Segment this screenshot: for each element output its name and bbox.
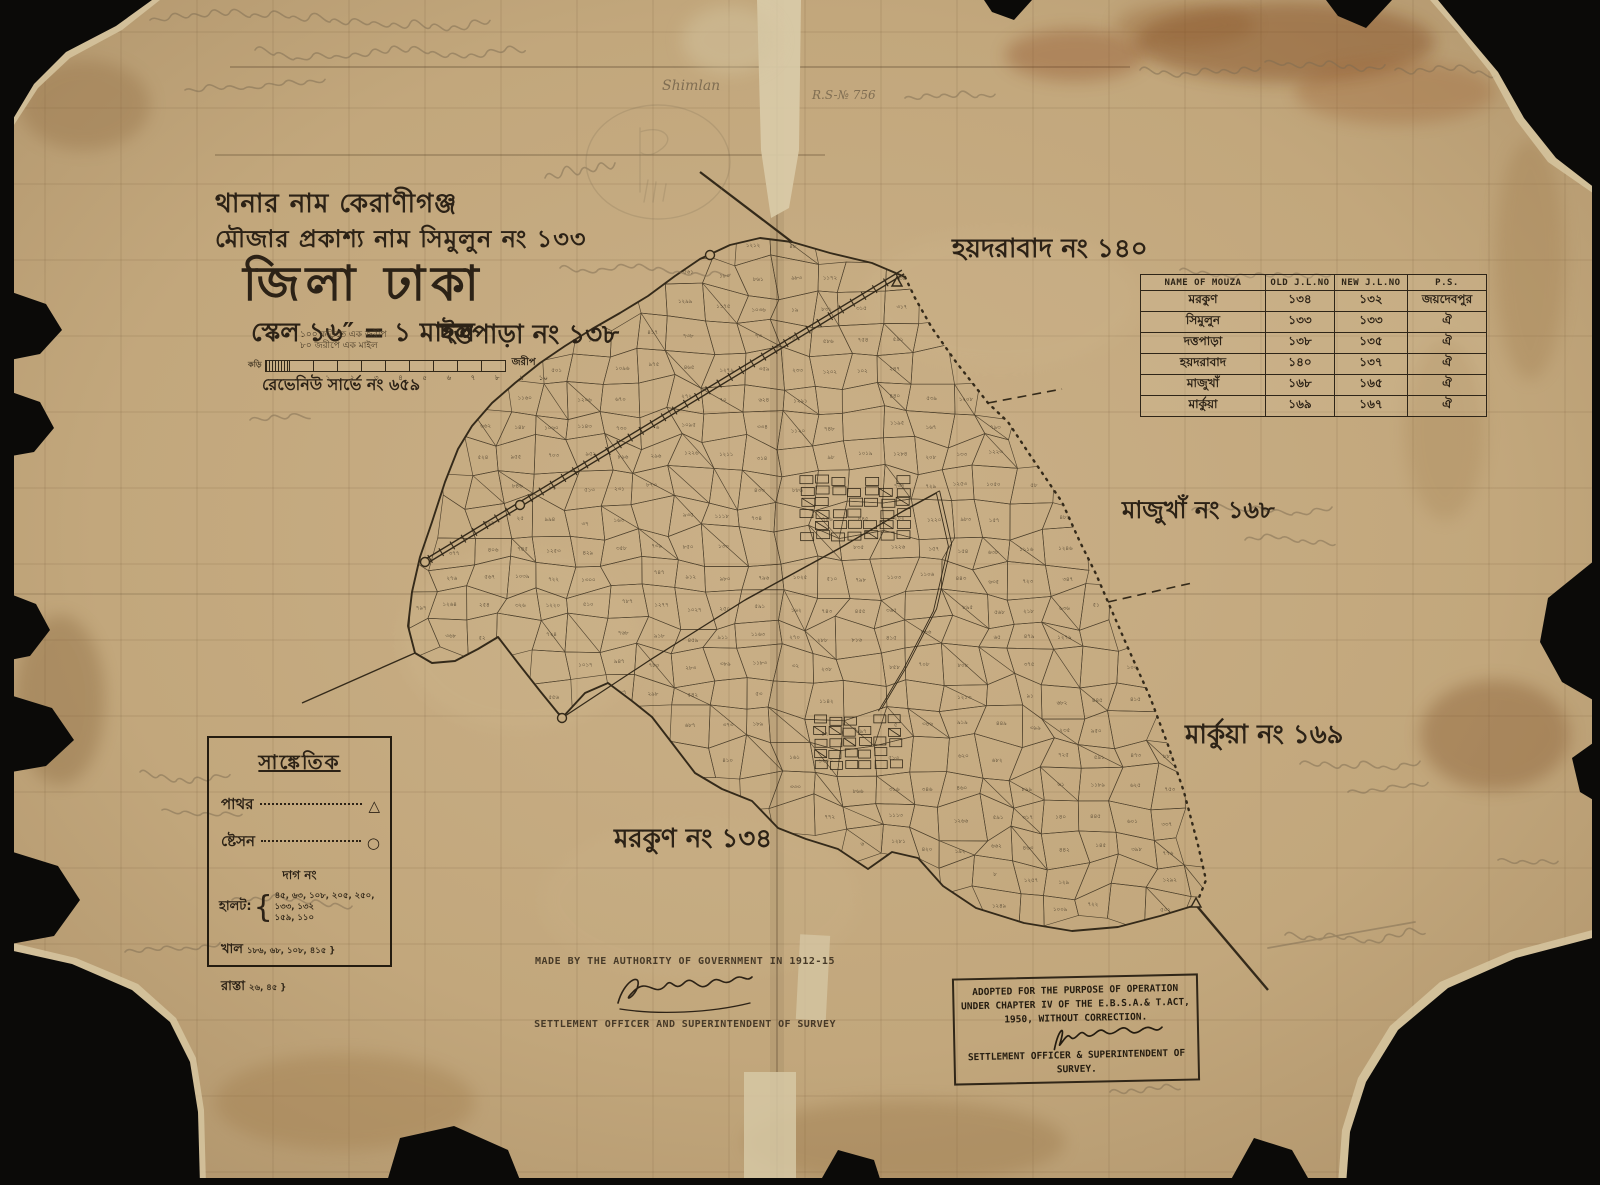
svg-text:১৩৩: ১৩৩: [956, 452, 967, 458]
svg-text:১২১৩: ১২১৩: [957, 695, 972, 701]
svg-text:৯৪৭: ৯৪৭: [614, 659, 625, 665]
svg-text:২০৮: ২০৮: [925, 455, 936, 461]
svg-text:১২০২: ১২০২: [823, 369, 838, 375]
svg-text:১০২: ১০২: [857, 368, 868, 374]
svg-text:৩২৬: ৩২৬: [515, 603, 526, 609]
label-dattapara: দত্তপাড়া নং ১৩৮: [440, 314, 619, 358]
svg-text:১৪৮: ১৪৮: [514, 425, 525, 431]
settlement-officer-signature: [610, 969, 760, 1017]
svg-text:৬৩৫: ৬৩৫: [988, 579, 999, 585]
svg-text:৫৩৯: ৫৩৯: [926, 396, 937, 402]
svg-text:২৭২: ২৭২: [681, 394, 692, 400]
svg-text:৩৪৭: ৩৪৭: [1062, 577, 1073, 583]
triangle-symbol-icon: △: [368, 797, 380, 815]
svg-text:১২১২: ১২১২: [746, 243, 761, 249]
station-mark-icon: [558, 714, 567, 723]
svg-text:৭২২: ৭২২: [548, 577, 559, 583]
svg-text:৭৩৯: ৭৩৯: [651, 543, 662, 549]
svg-text:১২৯: ১২৯: [1058, 880, 1069, 886]
legend-item-label: হালট:: [219, 897, 252, 918]
legend-item-label: খাল: [221, 940, 243, 961]
svg-text:৩১৭: ৩১৭: [896, 305, 907, 311]
svg-text:৭৯৮: ৭৯৮: [855, 578, 866, 584]
svg-text:১১৪৩: ১১৪৩: [578, 424, 593, 430]
svg-text:৭৬৮: ৭৬৮: [618, 631, 629, 637]
svg-text:৯৮০: ৯৮০: [720, 577, 731, 583]
svg-text:১০৩৬: ১০৩৬: [751, 308, 766, 314]
svg-text:৮৭৩: ৮৭৩: [646, 483, 657, 489]
svg-text:৩২: ৩২: [792, 663, 800, 669]
svg-text:১৬৭: ১৬৭: [926, 425, 937, 431]
legend-item-halot: হালট: { ৪৫, ৬৩, ১০৮, ২০৫, ২৫০, ১৩৩, ১৩২ …: [219, 891, 386, 924]
svg-text:১২২০: ১২২০: [546, 603, 561, 609]
svg-text:২১৮: ২১৮: [1023, 609, 1034, 615]
svg-text:১২৭৭: ১২৭৭: [654, 602, 669, 608]
svg-text:৬০১: ৬০১: [1127, 819, 1138, 825]
svg-text:৩৪৬: ৩৪৬: [922, 722, 933, 728]
svg-text:১৬১: ১৬১: [789, 755, 800, 761]
svg-text:১৮৯: ১৮৯: [753, 721, 764, 727]
svg-text:২৮৮: ২৮৮: [817, 638, 828, 644]
svg-text:১২৫৩: ১২৫৩: [546, 549, 561, 555]
svg-text:৭৮০: ৭৮০: [649, 663, 660, 669]
svg-text:১৪৫: ১৪৫: [1095, 843, 1106, 849]
svg-text:৪৪৫: ৪৪৫: [1092, 698, 1103, 704]
svg-text:৭৯৭: ৭৯৭: [416, 606, 427, 612]
svg-text:৬: ৬: [860, 842, 864, 848]
col-header-name: NAME OF MOUZA: [1141, 275, 1266, 291]
legend-title: সাঙ্কেতিক: [209, 748, 390, 781]
legend-item-label: ষ্টেসন: [221, 830, 255, 855]
svg-text:৪৮: ৪৮: [789, 244, 797, 250]
svg-text:১০৯৬: ১০৯৬: [615, 366, 630, 372]
svg-text:৪৭৩: ৪৭৩: [1130, 753, 1141, 759]
scale-bar-left-label: কড়ি: [248, 359, 262, 372]
station-mark-icon: [421, 558, 430, 567]
svg-text:২৪৭: ২৪৭: [889, 367, 900, 373]
pencil-note-shimlan: Shimlan: [662, 78, 720, 94]
svg-text:৪৬৫: ৪৬৫: [684, 365, 695, 371]
svg-text:৫: ৫: [894, 722, 898, 728]
svg-text:৬৮৭: ৬৮৭: [685, 723, 696, 729]
svg-text:১২৪৬: ১২৪৬: [1058, 546, 1073, 552]
svg-text:৯৩৫: ৯৩৫: [683, 513, 694, 519]
svg-text:৩৮৯: ৩৮৯: [720, 662, 731, 668]
table-row: হয়দরাবাদ১৪০ ১৩৭ঐ: [1141, 354, 1487, 375]
svg-text:১২২৩: ১২২৩: [989, 450, 1004, 456]
svg-text:১২৬৪: ১২৬৪: [443, 602, 458, 608]
svg-text:৭৯৬: ৭৯৬: [758, 576, 769, 582]
svg-text:১০১৭: ১০১৭: [578, 663, 593, 669]
svg-text:১৯: ১৯: [791, 307, 799, 313]
mouza-name-line: মৌজার প্রকাশ্য নাম সিমুলুন নং ১৩৩: [215, 226, 685, 254]
svg-text:৫৯১: ৫৯১: [893, 337, 904, 343]
table-row: সিমুলুন১৩৩ ১৩৩ঐ: [1141, 312, 1487, 333]
svg-text:৭৪৭: ৭৪৭: [654, 570, 665, 576]
svg-text:৯৭৫: ৯৭৫: [649, 362, 660, 368]
svg-text:২৭০: ২৭০: [789, 635, 800, 641]
svg-text:৬৫: ৬৫: [994, 635, 1002, 641]
svg-text:৭২৪: ৭২৪: [546, 632, 557, 638]
svg-text:৯১৯: ৯১৯: [957, 720, 968, 726]
svg-text:১১৬০: ১১৬০: [518, 396, 533, 402]
svg-text:২৫: ২৫: [517, 516, 525, 522]
svg-text:১৫৭: ১৫৭: [989, 518, 1000, 524]
revenue-survey-note: রেভেনিউ সার্ভে নং ৬৫৯: [262, 372, 420, 399]
svg-text:১২২৬: ১২২৬: [684, 450, 699, 456]
svg-text:১২৪৯: ১২৪৯: [992, 903, 1007, 909]
svg-text:৭৯৩: ৭৯৩: [990, 425, 1001, 431]
authority-line: MADE BY THE AUTHORITY OF GOVERNMENT IN 1…: [520, 956, 850, 967]
svg-text:৮৬১: ৮৬১: [753, 277, 764, 283]
officer-line: SETTLEMENT OFFICER AND SUPERINTENDENT OF…: [520, 1019, 850, 1030]
svg-text:৩৯৯: ৩৯৯: [1030, 725, 1041, 731]
svg-text:৮৯৬: ৮৯৬: [618, 455, 629, 461]
svg-text:৭৪৫: ৭৪৫: [517, 546, 528, 552]
svg-text:১০৫০: ১০৫০: [986, 482, 1001, 488]
svg-text:১১১৩: ১১১৩: [889, 813, 904, 819]
svg-text:৫১৩: ৫১৩: [888, 756, 899, 762]
table-row: মার্কুয়া১৬৯ ১৬৭ঐ: [1141, 396, 1487, 417]
svg-text:৩১৬: ৩১৬: [889, 787, 900, 793]
svg-text:৫৯১: ৫৯১: [754, 604, 765, 610]
svg-text:১২৫৭: ১২৫৭: [1024, 878, 1039, 884]
svg-text:৪৪২: ৪৪২: [1059, 847, 1070, 853]
col-header-old: OLD J.L.NO: [1266, 275, 1335, 291]
svg-text:৫৫৬: ৫৫৬: [548, 695, 559, 701]
svg-text:১০১৯: ১০১৯: [858, 451, 873, 457]
svg-text:৫১০: ৫১০: [583, 602, 594, 608]
svg-text:৪৪৩: ৪৪৩: [956, 576, 967, 582]
svg-text:৫৯১: ৫৯১: [1094, 755, 1105, 761]
pencil-note-rs-number: R.S-№ 756: [812, 88, 876, 102]
svg-text:৭৪৩: ৭৪৩: [822, 609, 833, 615]
svg-text:৩৩৭: ৩৩৭: [1161, 822, 1172, 828]
dotted-leader: [260, 803, 363, 805]
svg-text:৭৩৪: ৭৩৪: [751, 516, 762, 522]
svg-text:১৩০০: ১৩০০: [581, 577, 596, 583]
svg-text:১১৭২: ১১৭২: [823, 275, 838, 281]
svg-text:৯৯৪: ৯৯৪: [545, 517, 556, 523]
svg-text:২৩১: ২৩১: [614, 487, 625, 493]
svg-text:৯১৮: ৯১৮: [654, 634, 665, 640]
svg-text:৬২০: ৬২০: [958, 753, 969, 759]
svg-text:২৯৬: ২৯৬: [651, 454, 662, 460]
svg-text:৩৬৫: ৩৬৫: [886, 608, 897, 614]
svg-text:১১০৬: ১১০৬: [920, 572, 935, 578]
legend-item-label: রাস্তা: [221, 977, 245, 998]
svg-text:১১৪২: ১১৪২: [819, 699, 834, 705]
svg-text:৩৫৮: ৩৫৮: [616, 546, 627, 552]
svg-text:৪৪০: ৪৪০: [889, 394, 900, 400]
adoption-stamp: ADOPTED FOR THE PURPOSE OF OPERATION UND…: [952, 973, 1200, 1085]
svg-text:৩৩৪: ৩৩৪: [757, 425, 768, 431]
table-row: মরকুণ১৩৪ ১৩২জয়দেবপুর: [1141, 291, 1487, 312]
svg-text:৭০৮: ৭০৮: [919, 662, 930, 668]
scanned-map-sheet: ৭৯৭৩৭৭২৭৬১২৬৪৩৬৮৬৬২৫২৪৪৯৭৪০৬৫৬৭২৫৪৫২১১৬০…: [0, 0, 1600, 1185]
svg-text:৩১৪: ৩১৪: [757, 456, 768, 462]
svg-text:১৫৪: ১৫৪: [958, 549, 969, 555]
circle-symbol-icon: ○: [367, 834, 380, 852]
svg-text:৫৬৮: ৫৬৮: [994, 610, 1005, 616]
station-mark-icon: [516, 501, 525, 510]
legend-item-rasta: রাস্তা ২৬, ৪৫ }: [221, 977, 384, 998]
svg-text:১০৯৫: ১০৯৫: [682, 422, 697, 428]
svg-text:১৯২: ১৯২: [955, 849, 966, 855]
svg-text:৬১: ৬১: [1057, 782, 1065, 788]
legend-item-stone: পাথর △: [221, 793, 380, 818]
svg-text:৪৩৩: ৪৩৩: [754, 488, 765, 494]
svg-text:৫১০: ৫১০: [826, 576, 837, 582]
svg-text:১৩৩: ১৩৩: [718, 544, 729, 550]
svg-text:৮৩৫: ৮৩৫: [853, 545, 864, 551]
svg-text:২৩৮: ২৩৮: [821, 667, 832, 673]
scale-bar-rule: [265, 360, 506, 372]
svg-text:৮৫০: ৮৫০: [683, 545, 694, 551]
svg-text:৭৫৩: ৭৫৩: [1165, 787, 1176, 793]
label-markua: মার্কুয়া নং ১৬৯: [1185, 714, 1343, 758]
svg-text:৪২০: ৪২০: [922, 847, 933, 853]
svg-text:৪০৬: ৪০৬: [488, 548, 499, 554]
svg-text:১২২০: ১২২০: [927, 517, 942, 523]
svg-text:৬২৪: ৬২৪: [758, 397, 769, 403]
svg-text:৯৫৫: ৯৫৫: [511, 454, 522, 460]
thana-name-line: থানার নাম কেরাণীগঞ্জ: [215, 190, 685, 220]
svg-text:৮৯৯: ৮৯৯: [1021, 787, 1032, 793]
svg-text:১২৮৪: ১২৮৪: [893, 451, 908, 457]
svg-text:৯১১: ৯১১: [717, 635, 728, 641]
svg-text:১২২৬: ১২২৬: [891, 545, 906, 551]
svg-text:৮১৬: ৮১৬: [851, 637, 862, 643]
svg-text:১২৫৩: ১২৫৩: [953, 482, 968, 488]
svg-text:৫৯১: ৫৯১: [993, 815, 1004, 821]
svg-text:৭০৩: ৭০৩: [548, 453, 559, 459]
legend-dag-heading: দাগ নং: [209, 867, 390, 887]
svg-text:১১১৮: ১১১৮: [715, 514, 730, 520]
svg-text:৪২৯: ৪২৯: [582, 550, 593, 556]
svg-text:৮০৮: ৮০৮: [958, 663, 969, 669]
svg-text:৬৮২: ৬৮২: [992, 758, 1003, 764]
table-row: দত্তপাড়া১৩৮ ১৩৫ঐ: [1141, 333, 1487, 354]
svg-text:৭৭৬: ৭৭৬: [1163, 851, 1174, 857]
svg-text:১০২৫: ১০২৫: [793, 575, 808, 581]
svg-text:১৫৭: ১৫৭: [928, 547, 939, 553]
svg-text:১২৮১: ১২৮১: [891, 839, 906, 845]
svg-text:১১৬৩: ১১৬৩: [751, 632, 766, 638]
svg-text:৪৪৫: ৪৪৫: [1090, 814, 1101, 820]
svg-text:৫৬৭: ৫৬৭: [484, 574, 495, 580]
svg-text:৭৭২: ৭৭২: [824, 814, 835, 820]
station-mark-icon: [706, 251, 715, 260]
svg-text:৩১৭: ৩১৭: [1022, 815, 1033, 821]
svg-text:৯১: ৯১: [1027, 694, 1035, 700]
svg-text:৩৪৬: ৩৪৬: [922, 787, 933, 793]
svg-text:৯৫০: ৯৫০: [1091, 729, 1102, 735]
svg-text:৪৬০: ৪৬০: [956, 786, 967, 792]
svg-text:৭৫৪: ৭৫৪: [858, 338, 869, 344]
svg-text:৩১৫: ৩১৫: [856, 306, 867, 312]
svg-text:১১৮৩: ১১৮৩: [753, 661, 768, 667]
svg-text:৪৫৯: ৪৫৯: [688, 638, 699, 644]
svg-text:১২০৬: ১২০৬: [577, 397, 592, 403]
svg-text:২৮৩: ২৮৩: [685, 665, 696, 671]
svg-text:২৫৪: ২৫৪: [479, 602, 490, 608]
brace-glyph: {: [254, 894, 273, 921]
svg-text:৮৪৬: ৮৪৬: [512, 483, 523, 489]
svg-text:১০৩৯: ১০৩৯: [515, 574, 530, 580]
svg-text:৩৭৭: ৩৭৭: [449, 551, 460, 557]
svg-text:১১৭৫: ১১৭৫: [716, 304, 731, 310]
khal-plot-numbers: ১৮৬, ৬৮, ১০৮, ৪১৫ }: [247, 944, 335, 958]
svg-text:৬৮২: ৬৮২: [1057, 701, 1068, 707]
svg-text:৯৮৩: ৯৮৩: [791, 276, 802, 282]
legend-item-station: ষ্টেসন ○: [221, 830, 380, 855]
svg-text:১০৬০: ১০৬০: [544, 425, 559, 431]
table-row: মাজুখাঁ১৬৮ ১৬৫ঐ: [1141, 375, 1487, 396]
svg-text:৫২: ৫২: [478, 635, 486, 641]
dotted-leader: [261, 840, 361, 842]
svg-text:৩৩৩: ৩৩৩: [790, 784, 801, 790]
svg-text:৭৩: ৭৩: [755, 334, 763, 340]
col-header-ps: P.S.: [1408, 275, 1487, 291]
svg-text:১০২৭: ১০২৭: [687, 608, 702, 614]
svg-text:৫৮৬: ৫৮৬: [823, 339, 834, 345]
svg-text:৭৮৭: ৭৮৭: [622, 599, 633, 605]
district-line: জিলা ঢাকা: [243, 257, 685, 312]
label-hyderabad: হয়দরাবাদ নং ১৪০: [952, 228, 1148, 272]
svg-text:১১৮৯: ১১৮৯: [1091, 782, 1106, 788]
svg-text:৭২২: ৭২২: [1088, 902, 1099, 908]
svg-text:১৬২: ১৬২: [791, 608, 802, 614]
svg-text:৪১০: ৪১০: [722, 758, 733, 764]
legend-box: সাঙ্কেতিক পাথর △ ষ্টেসন ○ দাগ নং হালট: {…: [207, 736, 392, 967]
svg-text:৪৭৯: ৪৭৯: [1024, 634, 1035, 640]
halot-plot-numbers-1: ৪৫, ৬৩, ১০৮, ২০৫, ২৫০, ১৩৩, ১৩২: [275, 891, 375, 912]
footer-block: MADE BY THE AUTHORITY OF GOVERNMENT IN 1…: [520, 956, 850, 1030]
svg-text:১১০৩: ১১০৩: [887, 575, 902, 581]
svg-text:১০০৯: ১০০৯: [1053, 907, 1068, 913]
svg-text:২৩৩: ২৩৩: [792, 368, 803, 374]
svg-text:৬৬২: ৬৬২: [480, 424, 491, 430]
svg-text:৭২৫: ৭২৫: [1058, 752, 1069, 758]
svg-text:৫১৩: ৫১৩: [584, 487, 595, 493]
svg-text:৫৪২: ৫৪২: [687, 693, 698, 699]
halot-plot-numbers-2: ১৫৯, ১১০: [275, 913, 314, 923]
svg-text:৪৪৯: ৪৪৯: [996, 721, 1007, 727]
svg-text:৫৮: ৫৮: [1030, 483, 1038, 489]
svg-text:৯৮৩: ৯৮৩: [960, 517, 971, 523]
col-header-new: NEW J.L.NO: [1335, 275, 1408, 291]
legend-item-khal: খাল ১৮৬, ৬৮, ১০৮, ৪১৫ }: [221, 940, 384, 961]
svg-text:৮৬৬: ৮৬৬: [853, 789, 864, 795]
label-morkun: মরকুণ নং ১৩৪: [614, 818, 772, 862]
jl-number-table: NAME OF MOUZA OLD J.L.NO NEW J.L.NO P.S.…: [1140, 274, 1487, 417]
svg-text:৫০১: ৫০১: [551, 368, 562, 374]
svg-text:১২৯২: ১২৯২: [1163, 877, 1178, 883]
svg-text:৪৬৩: ৪৬৩: [1023, 846, 1034, 852]
svg-text:৬৩৬: ৬৩৬: [1059, 606, 1070, 612]
svg-text:১১২০: ১১২০: [791, 428, 806, 434]
rasta-plot-numbers: ২৬, ৪৫ }: [249, 981, 286, 995]
svg-text:৭২৯: ৭২৯: [925, 484, 936, 490]
table-header-row: NAME OF MOUZA OLD J.L.NO NEW J.L.NO P.S.: [1141, 275, 1487, 291]
label-majukha: মাজুখাঁ নং ১৬৮: [1122, 492, 1275, 532]
svg-text:৭৪৮: ৭৪৮: [824, 427, 835, 433]
svg-text:১২০৮: ১২০৮: [959, 397, 974, 403]
svg-text:৬: ৬: [656, 425, 660, 431]
svg-text:১২৭৯: ১২৭৯: [1057, 635, 1072, 641]
svg-text:১১১৬: ১১১৬: [1019, 547, 1034, 553]
svg-text:৩৭৫: ৩৭৫: [1024, 662, 1035, 668]
svg-text:৫২৪: ৫২৪: [478, 455, 489, 461]
svg-text:৩৬৮: ৩৬৮: [445, 634, 456, 640]
svg-text:৮৯৫: ৮৯৫: [962, 605, 973, 611]
svg-text:৬২৫: ৬২৫: [1130, 783, 1141, 789]
svg-text:৪৫৫: ৪৫৫: [855, 609, 866, 615]
svg-text:১২৬৬: ১২৬৬: [954, 819, 969, 825]
svg-text:১১৯৫: ১১৯৫: [890, 421, 905, 427]
svg-text:১২৯১: ১২৯১: [793, 398, 808, 404]
svg-text:১৬৩: ১৬৩: [614, 518, 625, 524]
svg-text:২৭৬: ২৭৬: [446, 576, 457, 582]
svg-text:১২১১: ১২১১: [719, 452, 734, 458]
svg-text:৪১৫: ৪১৫: [886, 635, 897, 641]
svg-text:৮৩১: ৮৩১: [821, 307, 832, 313]
svg-text:২৩৫: ২৩৫: [1059, 728, 1070, 734]
svg-text:৩৭৩: ৩৭৩: [723, 722, 734, 728]
svg-text:৯১২: ৯১২: [685, 574, 696, 580]
svg-text:৭২৩: ৭২৩: [1022, 579, 1033, 585]
svg-text:৮: ৮: [993, 872, 997, 878]
svg-text:৮৫৮: ৮৫৮: [889, 665, 900, 671]
svg-text:৯৮: ৯৮: [827, 455, 835, 461]
svg-text:৬৭০: ৬৭০: [615, 397, 626, 403]
svg-text:৮৯৭: ৮৯৭: [856, 729, 867, 735]
tape-bottom: [744, 1072, 796, 1185]
svg-text:১৪০: ১৪০: [1055, 814, 1066, 820]
legend-item-label: পাথর: [221, 793, 254, 818]
svg-text:৩৫৯: ৩৫৯: [759, 367, 770, 373]
svg-text:৬৩৮: ৬৩৮: [988, 550, 999, 556]
svg-text:৫৩: ৫৩: [755, 692, 763, 698]
svg-text:৬৬২: ৬৬২: [991, 844, 1002, 850]
svg-text:৪১৫: ৪১৫: [1130, 697, 1141, 703]
svg-text:২৯৮: ২৯৮: [648, 691, 659, 697]
svg-text:৫১: ৫১: [1093, 603, 1101, 609]
svg-text:৭৩০: ৭৩০: [616, 426, 627, 432]
svg-text:৭০: ৭০: [720, 398, 728, 404]
svg-text:৩৯৮: ৩৯৮: [1131, 847, 1142, 853]
svg-text:৩৭: ৩৭: [582, 521, 590, 527]
